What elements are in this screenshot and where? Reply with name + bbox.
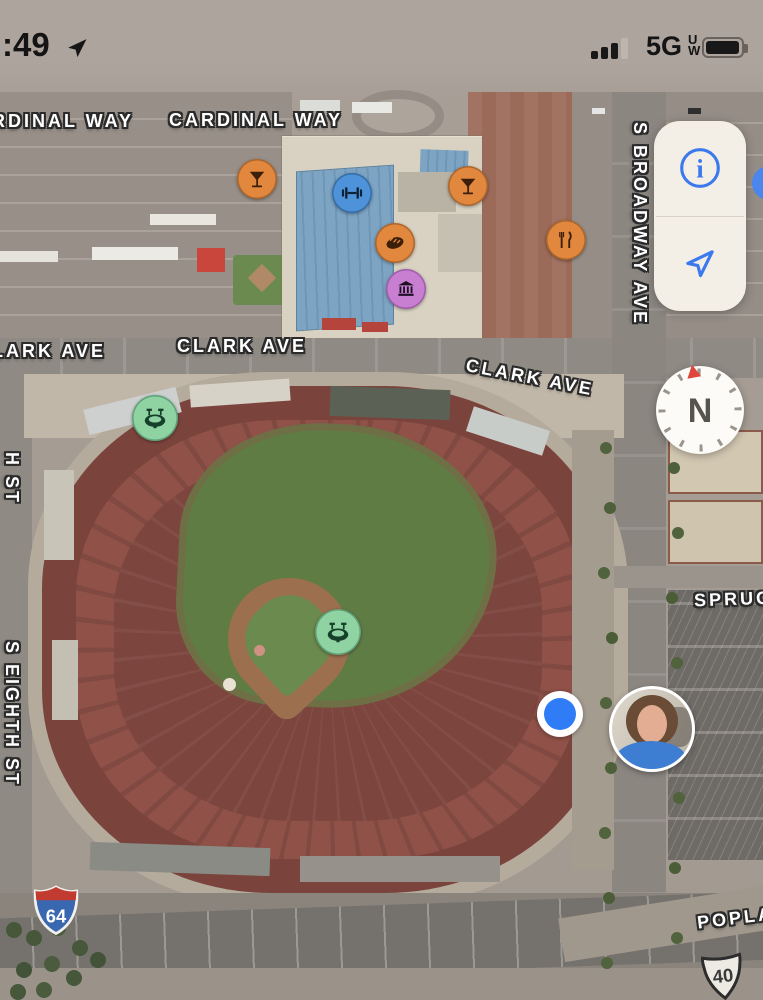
- scoreboard-roof: [330, 386, 451, 420]
- red-tent: [197, 248, 225, 272]
- east-service-lot: [572, 430, 614, 870]
- spruce-st-road: [614, 566, 763, 588]
- compass-control[interactable]: N: [653, 363, 747, 457]
- red-awning: [362, 322, 388, 332]
- location-arrow-icon: [681, 245, 719, 283]
- street-label-clark-ave-west: LARK AVE: [0, 341, 106, 362]
- rooftop-unit: [438, 214, 482, 272]
- street-label-h-st-partial: H ST: [1, 452, 22, 505]
- stadium-south-roof: [300, 856, 500, 882]
- home-plate-circle: [223, 678, 236, 691]
- cocktail-icon: [244, 166, 270, 192]
- poi-museum-marker[interactable]: [386, 269, 426, 309]
- tent: [150, 214, 216, 225]
- fork-knife-icon: [553, 227, 579, 253]
- highway-trees: [6, 922, 22, 938]
- stadium-south-roof: [90, 842, 271, 876]
- tent: [0, 251, 58, 262]
- us-route-40-shield: 40: [695, 948, 750, 1000]
- interstate-64-shield: 64: [33, 884, 79, 936]
- avatar-shirt: [616, 741, 686, 772]
- network-uw-label: U W: [688, 34, 700, 56]
- locate-button[interactable]: [654, 217, 746, 312]
- battery-icon: [702, 37, 744, 58]
- battery-tip: [744, 44, 748, 53]
- street-label-cardinal-way: CARDINAL WAY: [169, 110, 343, 131]
- network-w: W: [688, 45, 700, 56]
- poi-restaurant-marker[interactable]: [546, 220, 586, 260]
- compass-north-label: N: [688, 392, 713, 430]
- interstate-shield-number: 64: [46, 906, 67, 927]
- stadium-roof: [44, 470, 74, 560]
- poi-fitness-marker[interactable]: [332, 173, 372, 213]
- maps-app-screen: RDINAL WAY CARDINAL WAY LARK AVE CLARK A…: [0, 0, 763, 1000]
- tent: [92, 247, 178, 260]
- street-label-s-broadway-ave: S BROADWAY AVE: [629, 122, 650, 326]
- frontage-road: [0, 968, 763, 1000]
- status-bar: :49 5G U W: [0, 0, 763, 92]
- user-location-dot-inner: [544, 698, 576, 730]
- parked-cars: [592, 108, 605, 114]
- dumbbell-icon: [339, 180, 365, 206]
- info-glyph: i: [696, 155, 703, 184]
- rooftop-unit: [398, 172, 456, 212]
- info-button[interactable]: i: [654, 121, 746, 216]
- map-control-panel: i: [654, 121, 746, 311]
- stadium-roof: [52, 640, 78, 720]
- poi-stadium-marker[interactable]: [132, 395, 178, 441]
- poi-bar-marker[interactable]: [448, 166, 488, 206]
- poi-bakery-marker[interactable]: [375, 223, 415, 263]
- street-label-clark-ave: CLARK AVE: [177, 336, 307, 357]
- avatar-face: [637, 705, 667, 743]
- museum-icon: [393, 276, 419, 302]
- street-label-cardinal-way-west: RDINAL WAY: [0, 111, 134, 132]
- street-trees: [600, 442, 612, 454]
- roundabout-drive: [352, 90, 444, 142]
- info-icon: i: [677, 145, 723, 191]
- brick-plaza: [468, 92, 572, 344]
- pitchers-mound: [254, 645, 265, 656]
- location-services-icon: [64, 35, 91, 62]
- cellular-signal-icon: [591, 38, 628, 59]
- poi-bar-marker[interactable]: [237, 159, 277, 199]
- stadium-icon: [322, 616, 354, 648]
- red-awning: [322, 318, 356, 330]
- user-location-dot: [537, 691, 583, 737]
- us-route-shield-number: 40: [712, 964, 735, 987]
- battery-fill: [706, 41, 739, 54]
- clock-time: :49: [2, 26, 50, 64]
- bread-icon: [382, 230, 408, 256]
- cocktail-icon: [455, 173, 481, 199]
- poi-stadium-marker[interactable]: [315, 609, 361, 655]
- user-photo-avatar[interactable]: [609, 686, 695, 772]
- stadium-icon: [139, 402, 171, 434]
- street-label-s-eighth-st: S EIGHTH ST: [1, 641, 22, 787]
- network-type-label: 5G: [646, 31, 682, 62]
- street-label-spruce-partial: SPRUC: [694, 588, 763, 612]
- building-east-2: [668, 500, 763, 564]
